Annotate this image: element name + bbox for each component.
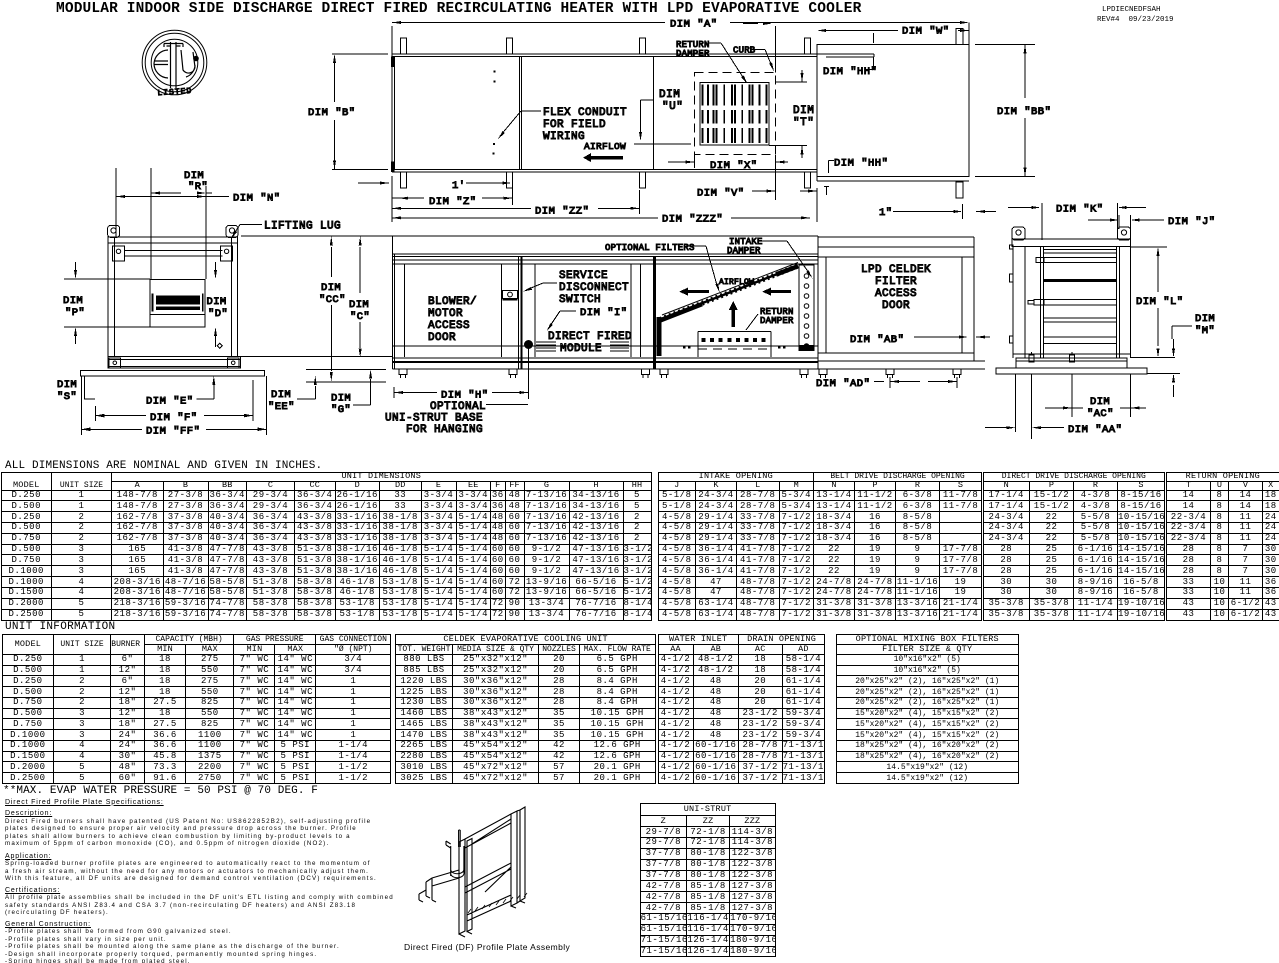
svg-text:DIM "X": DIM "X"	[710, 160, 758, 172]
svg-text:AIRFLOW: AIRFLOW	[584, 141, 626, 152]
svg-text:FILTER: FILTER	[875, 276, 917, 288]
svg-text:"CC": "CC"	[319, 294, 346, 306]
svg-text:DIM "B": DIM "B"	[308, 107, 356, 119]
svg-text:ACCESS: ACCESS	[428, 320, 470, 332]
svg-text:SWITCH: SWITCH	[559, 294, 601, 306]
svg-text:DIM "W": DIM "W"	[902, 26, 950, 38]
svg-text:CURB: CURB	[733, 46, 756, 56]
svg-text:"EE": "EE"	[268, 401, 295, 413]
svg-text:LPD CELDEK: LPD CELDEK	[861, 264, 931, 276]
svg-text:DIM "HH": DIM "HH"	[823, 66, 877, 78]
svg-text:DIM "A": DIM "A"	[670, 19, 718, 31]
svg-text:DIM: DIM	[321, 282, 341, 294]
svg-text:MODULE: MODULE	[560, 343, 602, 355]
svg-text:BLOWER/: BLOWER/	[428, 296, 477, 308]
svg-text:OPTIONAL: OPTIONAL	[430, 401, 486, 413]
svg-text:DIM "K": DIM "K"	[1056, 204, 1104, 216]
svg-text:ACCESS: ACCESS	[875, 288, 917, 300]
svg-text:DIRECT FIRED: DIRECT FIRED	[548, 331, 632, 343]
svg-text:DAMPER: DAMPER	[676, 49, 710, 59]
svg-text:DIM "AB": DIM "AB"	[850, 334, 904, 346]
svg-text:DIM "FF": DIM "FF"	[146, 426, 200, 438]
svg-text:DIM "AD": DIM "AD"	[816, 378, 870, 390]
svg-text:DIM: DIM	[1090, 396, 1110, 408]
svg-text:DIM "J": DIM "J"	[1168, 216, 1216, 228]
svg-text:DIM: DIM	[63, 295, 83, 307]
svg-text:DIM: DIM	[793, 105, 814, 117]
svg-text:DIM "BB": DIM "BB"	[997, 106, 1051, 118]
svg-text:DIM "N": DIM "N"	[233, 193, 281, 205]
svg-text:DIM "HH": DIM "HH"	[834, 158, 888, 170]
svg-text:"AC": "AC"	[1087, 408, 1114, 420]
svg-text:LIFTING LUG: LIFTING LUG	[264, 221, 341, 233]
svg-text:WIRING: WIRING	[543, 131, 585, 143]
svg-text:DIM "L": DIM "L"	[1136, 296, 1184, 308]
svg-text:DIM "ZZZ": DIM "ZZZ"	[662, 214, 723, 226]
svg-text:DAMPER: DAMPER	[760, 316, 794, 326]
svg-text:"T": "T"	[793, 117, 814, 129]
svg-text:DIM: DIM	[331, 393, 351, 405]
svg-text:MOTOR: MOTOR	[428, 308, 463, 320]
svg-text:SERVICE: SERVICE	[559, 270, 608, 282]
svg-text:DIM "F": DIM "F"	[150, 412, 198, 424]
svg-text:DIM: DIM	[207, 296, 227, 308]
svg-text:DAMPER: DAMPER	[727, 246, 761, 256]
svg-text:DIM "I": DIM "I"	[580, 307, 628, 319]
svg-text:DIM: DIM	[57, 379, 77, 391]
svg-text:FOR FIELD: FOR FIELD	[543, 119, 606, 131]
svg-text:DIM: DIM	[271, 389, 291, 401]
svg-text:"P": "P"	[65, 307, 85, 319]
svg-text:UNI-STRUT BASE: UNI-STRUT BASE	[385, 413, 483, 425]
svg-text:DIM "E": DIM "E"	[146, 396, 194, 408]
svg-text:"D": "D"	[208, 308, 228, 320]
svg-text:FOR HANGING: FOR HANGING	[406, 424, 483, 436]
svg-text:"S": "S"	[57, 391, 77, 403]
svg-text:FLEX CONDUIT: FLEX CONDUIT	[543, 107, 627, 119]
svg-text:LISTED: LISTED	[157, 87, 192, 98]
svg-text:DIM "H": DIM "H"	[441, 390, 489, 402]
svg-text:OPTIONAL FILTERS: OPTIONAL FILTERS	[605, 243, 695, 253]
svg-text:"R": "R"	[188, 181, 208, 193]
svg-text:DIM: DIM	[659, 89, 680, 101]
svg-text:DIM "Z": DIM "Z"	[429, 196, 477, 208]
svg-text:"C": "C"	[350, 311, 370, 323]
svg-text:DIM "AA": DIM "AA"	[1068, 424, 1122, 436]
svg-text:1": 1"	[879, 207, 893, 219]
svg-text:"U": "U"	[662, 101, 683, 113]
svg-text:DISCONNECT: DISCONNECT	[559, 282, 629, 294]
svg-text:DIM: DIM	[349, 299, 369, 311]
svg-text:AIRFLOW: AIRFLOW	[719, 278, 754, 287]
svg-text:DOOR: DOOR	[882, 300, 910, 312]
svg-text:DOOR: DOOR	[428, 332, 456, 344]
svg-text:DIM "ZZ": DIM "ZZ"	[535, 206, 589, 218]
svg-text:"M": "M"	[1195, 325, 1215, 337]
svg-text:DIM "V": DIM "V"	[697, 188, 745, 200]
svg-text:1': 1'	[452, 180, 466, 192]
svg-text:"G": "G"	[331, 404, 351, 416]
svg-text:DIM: DIM	[1195, 313, 1215, 325]
